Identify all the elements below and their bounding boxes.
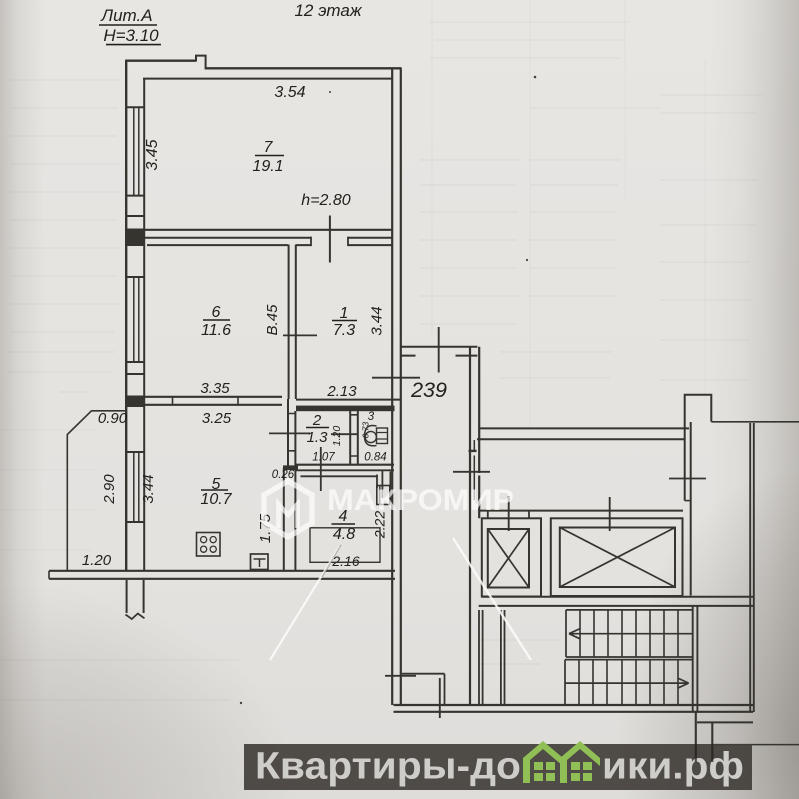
svg-text:6: 6 (212, 304, 221, 321)
svg-text:19.1: 19.1 (252, 158, 283, 175)
svg-text:В.45: В.45 (264, 304, 281, 336)
svg-text:10.7: 10.7 (200, 491, 232, 508)
svg-text:3.44: 3.44 (369, 306, 386, 335)
svg-text:2.16: 2.16 (331, 553, 359, 569)
svg-text:3.54: 3.54 (274, 84, 305, 101)
svg-text:2.13: 2.13 (326, 383, 357, 400)
svg-text:7: 7 (264, 139, 274, 156)
svg-text:Квартиры-до: Квартиры-до (255, 746, 521, 788)
svg-text:11.6: 11.6 (201, 322, 231, 339)
svg-text:1.07: 1.07 (312, 452, 335, 464)
svg-text:3: 3 (368, 411, 375, 423)
svg-text:239: 239 (410, 378, 447, 402)
svg-text:3.44: 3.44 (140, 474, 157, 503)
svg-text:4.8: 4.8 (333, 526, 355, 543)
svg-text:3.45: 3.45 (144, 139, 161, 170)
svg-text:1: 1 (340, 305, 349, 322)
svg-text:1.3: 1.3 (307, 429, 329, 446)
svg-text:1.20: 1.20 (331, 426, 343, 447)
svg-text:0.90: 0.90 (98, 410, 128, 427)
svg-text:0.84: 0.84 (364, 452, 386, 464)
svg-text:2: 2 (312, 412, 322, 429)
svg-text:Лит.А: Лит.А (100, 6, 152, 25)
svg-text:7.3: 7.3 (333, 322, 355, 339)
svg-text:ики.рф: ики.рф (602, 746, 744, 788)
svg-text:Н=3.10: Н=3.10 (103, 26, 159, 45)
svg-text:МАКРОМИР: МАКРОМИР (327, 484, 514, 517)
svg-text:2.90: 2.90 (101, 474, 118, 505)
svg-text:0.26: 0.26 (272, 469, 295, 481)
svg-text:h=2.80: h=2.80 (301, 192, 350, 209)
svg-text:12 этаж: 12 этаж (294, 1, 362, 20)
svg-text:1.20: 1.20 (82, 552, 112, 569)
svg-text:3.25: 3.25 (202, 410, 232, 427)
svg-text:3.35: 3.35 (200, 380, 230, 397)
